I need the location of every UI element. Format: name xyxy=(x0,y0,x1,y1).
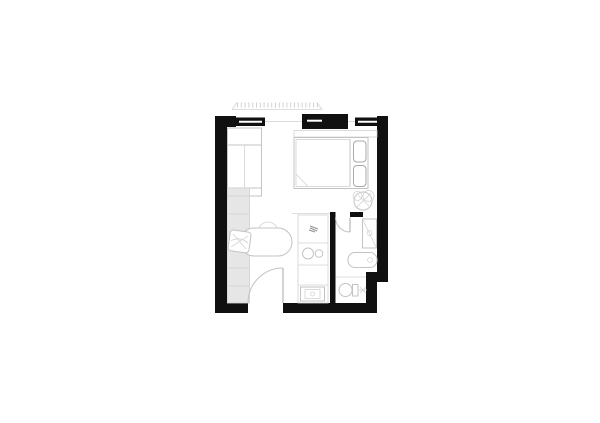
wardrobe xyxy=(228,128,262,196)
desk-chair xyxy=(228,230,252,254)
plant-foliage-3 xyxy=(353,192,362,201)
bathroom-door-jamb xyxy=(350,212,363,217)
top-wall-left-pier xyxy=(215,116,236,127)
pillow-bottom xyxy=(354,166,367,187)
right-wall xyxy=(377,116,388,277)
toilet-tank xyxy=(353,285,359,297)
bathroom xyxy=(336,218,378,268)
entry-door-swing-arc xyxy=(248,268,283,303)
bottom-wall-mid xyxy=(283,303,330,313)
left-wall xyxy=(215,116,227,313)
bathroom-partition-wall xyxy=(330,212,336,307)
kitchenette xyxy=(298,215,328,303)
floor-plan-drawing xyxy=(0,0,600,423)
wc-room xyxy=(339,284,367,297)
canopy-end-left xyxy=(232,103,237,110)
pillow-top xyxy=(354,141,367,162)
toilet-bowl xyxy=(339,284,352,297)
shower-diagonal xyxy=(363,219,377,248)
headboard-shelf xyxy=(294,131,377,138)
bottom-wall-left xyxy=(215,303,248,313)
canopy-louvers xyxy=(232,103,322,110)
bed xyxy=(294,131,377,189)
potted-plant xyxy=(353,191,374,211)
floor-plan-canvas xyxy=(0,0,600,423)
entry-door xyxy=(248,268,283,303)
toilet-accessory-scribble xyxy=(359,287,367,293)
wardrobe-base-cell xyxy=(228,188,250,196)
bathroom-door-swing-arc xyxy=(336,218,351,233)
